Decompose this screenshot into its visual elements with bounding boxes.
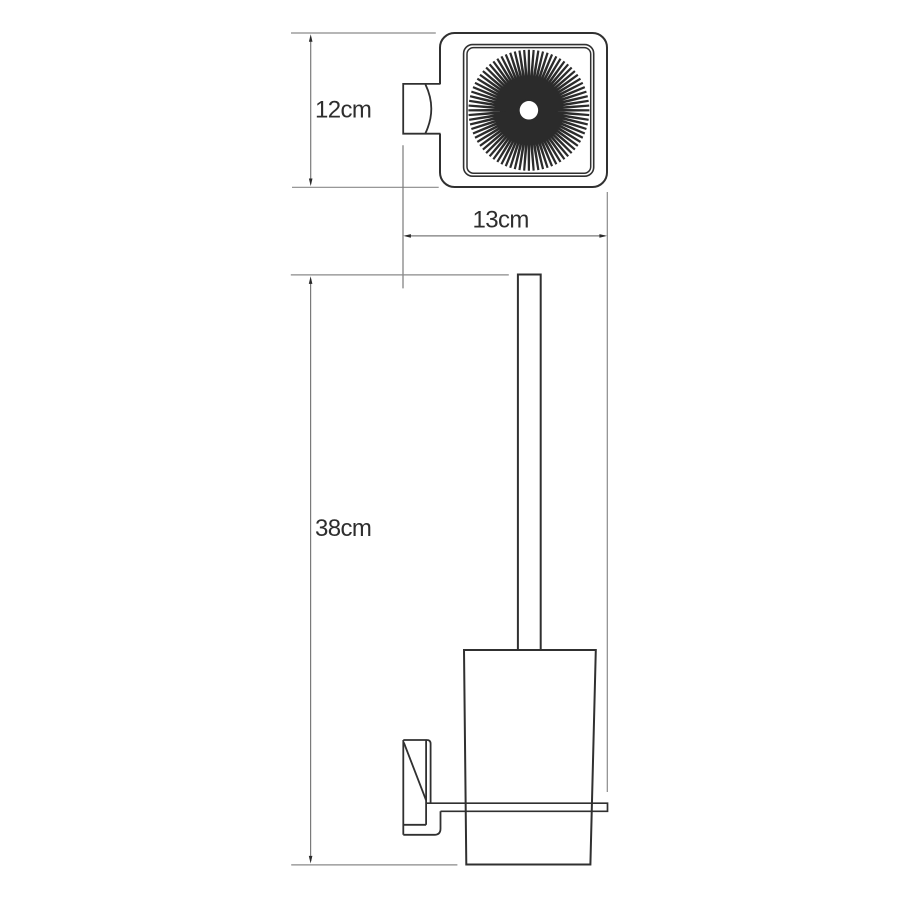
svg-text:12cm: 12cm <box>315 97 371 124</box>
svg-text:13cm: 13cm <box>473 206 529 233</box>
svg-text:38cm: 38cm <box>315 515 371 542</box>
